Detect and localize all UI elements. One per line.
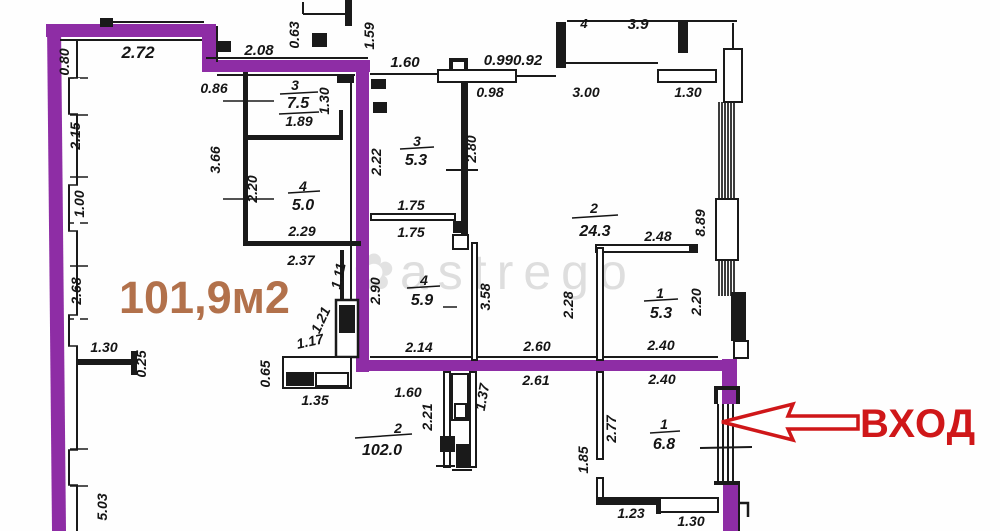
svg-text:2.40: 2.40 xyxy=(647,371,675,387)
svg-text:8.89: 8.89 xyxy=(692,209,708,236)
svg-text:1.59: 1.59 xyxy=(361,22,377,49)
svg-text:2.21: 2.21 xyxy=(419,403,435,431)
svg-text:2.15: 2.15 xyxy=(67,122,83,150)
svg-text:0.65: 0.65 xyxy=(257,360,273,387)
svg-text:1.85: 1.85 xyxy=(575,446,591,473)
svg-text:5.9: 5.9 xyxy=(411,292,433,309)
svg-text:1.30: 1.30 xyxy=(677,513,704,529)
svg-text:2.37: 2.37 xyxy=(286,252,315,268)
svg-text:1: 1 xyxy=(660,416,668,432)
svg-text:2.28: 2.28 xyxy=(560,291,576,319)
svg-text:2.40: 2.40 xyxy=(646,337,674,353)
svg-text:4: 4 xyxy=(419,272,428,288)
svg-text:7.5: 7.5 xyxy=(287,95,310,112)
svg-text:5.03: 5.03 xyxy=(94,493,110,520)
svg-text:3: 3 xyxy=(291,77,299,93)
svg-text:2.60: 2.60 xyxy=(522,338,550,354)
svg-text:1.75: 1.75 xyxy=(397,224,424,240)
svg-text:0.86: 0.86 xyxy=(200,80,227,96)
svg-text:2: 2 xyxy=(393,420,402,436)
svg-text:2: 2 xyxy=(589,200,598,216)
svg-text:1: 1 xyxy=(656,285,664,301)
svg-text:0.80: 0.80 xyxy=(56,48,72,75)
svg-text:0.25: 0.25 xyxy=(133,350,149,377)
svg-text:1.30: 1.30 xyxy=(674,84,701,100)
svg-text:2.29: 2.29 xyxy=(287,223,315,239)
svg-text:ВХОД: ВХОД xyxy=(860,402,976,446)
svg-text:2.20: 2.20 xyxy=(244,175,260,203)
svg-text:102.0: 102.0 xyxy=(362,442,402,459)
svg-text:2.48: 2.48 xyxy=(643,228,671,244)
svg-text:2.22: 2.22 xyxy=(368,148,384,176)
svg-text:1.23: 1.23 xyxy=(617,505,644,521)
svg-text:3.9: 3.9 xyxy=(628,16,650,33)
svg-text:101,9м2: 101,9м2 xyxy=(119,272,290,323)
svg-text:24.3: 24.3 xyxy=(578,223,610,240)
svg-text:2.80: 2.80 xyxy=(463,135,479,163)
svg-text:5.3: 5.3 xyxy=(650,305,672,322)
svg-text:1.00: 1.00 xyxy=(71,190,87,217)
svg-text:2.20: 2.20 xyxy=(688,288,704,316)
svg-text:5.3: 5.3 xyxy=(405,152,427,169)
svg-text:3.00: 3.00 xyxy=(572,84,599,100)
svg-text:0.98: 0.98 xyxy=(476,84,503,100)
svg-text:3: 3 xyxy=(413,133,421,149)
svg-text:4: 4 xyxy=(579,16,588,31)
svg-text:1.30: 1.30 xyxy=(316,87,332,114)
svg-text:0.990.92: 0.990.92 xyxy=(484,52,543,69)
svg-text:6.8: 6.8 xyxy=(653,436,675,453)
svg-text:2.08: 2.08 xyxy=(243,42,274,59)
svg-text:3.66: 3.66 xyxy=(207,146,223,173)
svg-text:1.35: 1.35 xyxy=(301,392,328,408)
svg-text:2.14: 2.14 xyxy=(404,339,432,355)
svg-text:1.75: 1.75 xyxy=(397,197,424,213)
svg-text:1.60: 1.60 xyxy=(390,54,420,71)
svg-text:0.63: 0.63 xyxy=(286,21,302,48)
svg-text:3.58: 3.58 xyxy=(477,283,493,310)
svg-text:2.61: 2.61 xyxy=(521,372,549,388)
svg-text:2.68: 2.68 xyxy=(68,277,84,305)
svg-text:2.77: 2.77 xyxy=(603,414,619,443)
svg-text:1.30: 1.30 xyxy=(90,339,117,355)
svg-text:1.89: 1.89 xyxy=(285,113,312,129)
svg-text:2.72: 2.72 xyxy=(120,43,155,62)
svg-text:5.0: 5.0 xyxy=(292,197,314,214)
svg-text:2.90: 2.90 xyxy=(367,277,383,305)
svg-text:1.60: 1.60 xyxy=(394,384,421,400)
